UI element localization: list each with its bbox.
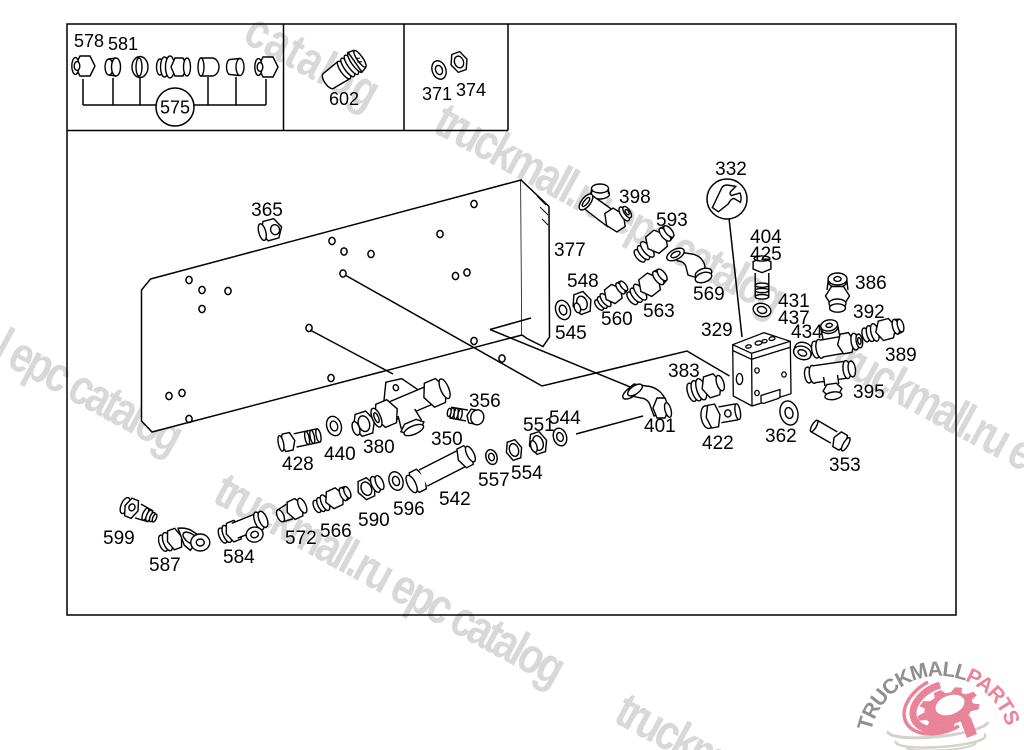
svg-text:560: 560	[601, 309, 633, 330]
svg-text:380: 380	[363, 437, 395, 458]
svg-text:581: 581	[108, 34, 138, 54]
svg-text:554: 554	[511, 463, 543, 484]
svg-text:542: 542	[439, 489, 471, 510]
svg-text:353: 353	[829, 455, 861, 476]
svg-text:596: 596	[393, 499, 425, 520]
svg-text:587: 587	[149, 555, 181, 576]
svg-text:599: 599	[103, 528, 135, 549]
svg-text:566: 566	[320, 521, 352, 542]
svg-text:356: 356	[469, 391, 501, 412]
svg-text:440: 440	[324, 444, 356, 465]
svg-text:377: 377	[554, 240, 586, 261]
svg-text:386: 386	[855, 273, 887, 294]
svg-text:371: 371	[422, 84, 452, 104]
svg-text:575: 575	[160, 98, 190, 118]
svg-text:401: 401	[644, 416, 676, 437]
svg-text:590: 590	[358, 510, 390, 531]
svg-text:392: 392	[853, 302, 885, 323]
svg-text:563: 563	[643, 301, 675, 322]
svg-text:578: 578	[74, 31, 104, 51]
svg-text:545: 545	[555, 323, 587, 344]
svg-text:374: 374	[456, 80, 486, 100]
svg-text:557: 557	[478, 470, 510, 491]
svg-text:584: 584	[223, 547, 255, 568]
svg-text:548: 548	[567, 271, 599, 292]
svg-text:350: 350	[431, 429, 463, 450]
svg-text:569: 569	[693, 284, 725, 305]
svg-text:332: 332	[715, 159, 747, 180]
svg-text:329: 329	[701, 320, 733, 341]
svg-text:362: 362	[765, 426, 797, 447]
svg-text:389: 389	[885, 345, 917, 366]
svg-text:365: 365	[251, 200, 283, 221]
svg-text:602: 602	[329, 89, 359, 109]
svg-text:383: 383	[668, 361, 700, 382]
svg-text:593: 593	[656, 210, 688, 231]
svg-text:572: 572	[285, 528, 317, 549]
svg-text:428: 428	[282, 454, 314, 475]
svg-text:395: 395	[853, 382, 885, 403]
svg-text:422: 422	[702, 433, 734, 454]
svg-text:544: 544	[549, 408, 581, 429]
svg-text:434: 434	[791, 322, 823, 343]
svg-text:425: 425	[750, 244, 782, 265]
svg-text:398: 398	[619, 187, 651, 208]
